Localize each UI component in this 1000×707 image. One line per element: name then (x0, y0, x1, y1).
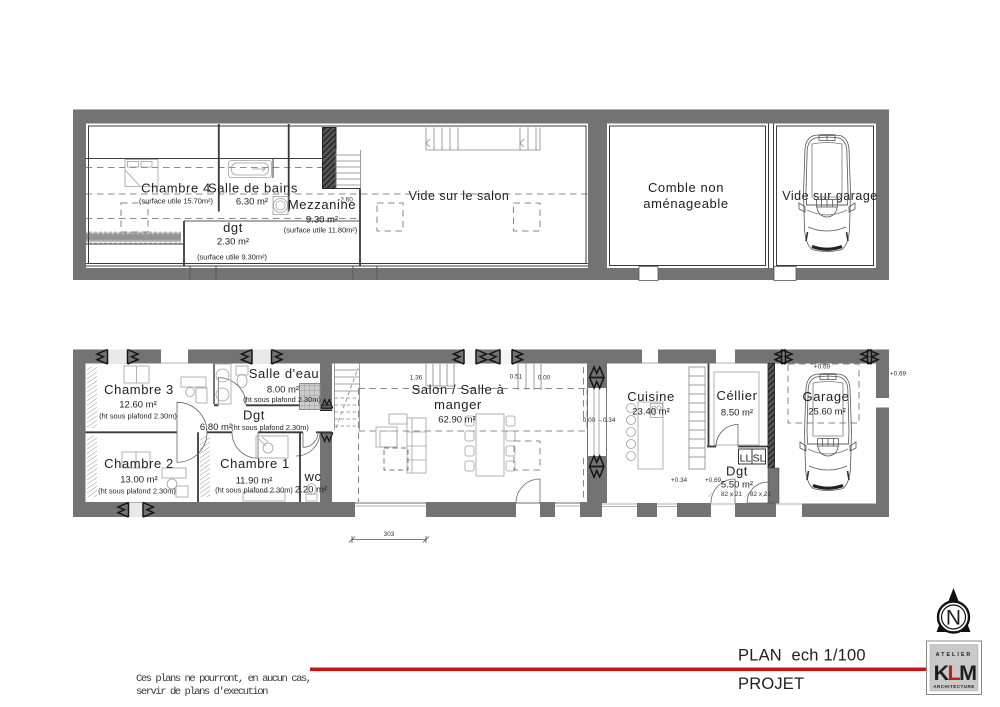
svg-text:(ht sous plafond 2.30m): (ht sous plafond 2.30m) (231, 423, 309, 432)
svg-text:ARCHITECTURE: ARCHITECTURE (933, 684, 975, 689)
svg-text:8.00 m²: 8.00 m² (267, 385, 299, 396)
svg-text:Salle de bains: Salle de bains (208, 180, 298, 195)
svg-text:Vide sur garage: Vide sur garage (782, 189, 878, 203)
svg-text:SL: SL (753, 453, 766, 465)
svg-text:Salon / Salle à: Salon / Salle à (412, 382, 505, 397)
svg-text:(surface utile 15.70m²): (surface utile 15.70m²) (139, 197, 213, 206)
svg-text:+0.69: +0.69 (705, 477, 722, 484)
svg-text:KLM: KLM (934, 661, 976, 685)
svg-text:servir de plans d'execution: servir de plans d'execution (136, 686, 268, 698)
svg-text:PROJET: PROJET (738, 675, 804, 693)
svg-text:N: N (946, 607, 961, 630)
svg-text:(ht sous plafond 2.30m): (ht sous plafond 2.30m) (215, 486, 293, 495)
svg-text:dgt: dgt (223, 220, 243, 235)
svg-text:62.90 m²: 62.90 m² (438, 415, 476, 426)
svg-text:-2.60: -2.60 (338, 197, 353, 204)
svg-text:Dgt: Dgt (243, 408, 265, 423)
svg-text:0.00: 0.00 (583, 417, 596, 424)
svg-text:(ht sous plafond 2.30m): (ht sous plafond 2.30m) (98, 487, 176, 496)
svg-text:manger: manger (434, 397, 482, 412)
svg-text:Vide sur le salon: Vide sur le salon (409, 189, 510, 203)
svg-text:+0.34: +0.34 (671, 477, 688, 484)
svg-text:Chambre 1: Chambre 1 (220, 456, 290, 471)
svg-text:1.36: 1.36 (410, 375, 423, 382)
svg-text:303: 303 (384, 531, 395, 538)
svg-text:Cuisine: Cuisine (627, 389, 675, 404)
svg-text:5.50 m²: 5.50 m² (721, 480, 753, 491)
svg-text:9.30 m²: 9.30 m² (306, 215, 338, 226)
svg-text:(surface utile 9.30m²): (surface utile 9.30m²) (197, 253, 267, 262)
svg-text:2.30 m²: 2.30 m² (217, 237, 249, 248)
svg-text:Chambre 4: Chambre 4 (141, 180, 211, 195)
svg-text:6.80 m²: 6.80 m² (200, 422, 232, 433)
svg-text:Dgt: Dgt (726, 464, 748, 479)
svg-text:Comble non: Comble non (648, 180, 724, 195)
svg-text:(ht sous plafond 2.30m): (ht sous plafond 2.30m) (99, 412, 177, 421)
svg-text:25.60 m²: 25.60 m² (808, 407, 846, 418)
svg-text:Chambre 3: Chambre 3 (104, 382, 174, 397)
svg-text:aménageable: aménageable (643, 196, 728, 211)
svg-text:Céllier: Céllier (716, 388, 757, 403)
svg-text:Chambre 2: Chambre 2 (104, 456, 174, 471)
svg-text:2.20 m²: 2.20 m² (295, 485, 327, 496)
svg-text:wc: wc (303, 469, 321, 484)
svg-text:(surface utile 11.80m²): (surface utile 11.80m²) (284, 226, 357, 235)
svg-text:6.30 m²: 6.30 m² (236, 197, 268, 208)
svg-text:0.00: 0.00 (538, 375, 551, 382)
svg-text:+0.69: +0.69 (890, 371, 907, 378)
svg-text:→0.34: →0.34 (597, 417, 616, 424)
svg-text:82 x 21: 82 x 21 (750, 491, 771, 498)
svg-text:12.60 m²: 12.60 m² (119, 400, 157, 411)
svg-text:13.00 m²: 13.00 m² (120, 475, 158, 486)
svg-text:Salle d'eau: Salle d'eau (249, 366, 320, 381)
svg-text:Garage: Garage (803, 389, 850, 404)
svg-text:+0.69: +0.69 (814, 364, 831, 371)
svg-text:PLAN ech 1/100: PLAN ech 1/100 (738, 647, 866, 665)
svg-text:23.40 m²: 23.40 m² (632, 407, 670, 418)
svg-text:(ht sous plafond 2.30m): (ht sous plafond 2.30m) (243, 395, 321, 404)
svg-text:Ces plans ne pourront, en aucu: Ces plans ne pourront, en aucun cas, (136, 673, 311, 685)
svg-text:0.51: 0.51 (510, 374, 523, 381)
svg-text:82 x 21: 82 x 21 (721, 491, 742, 498)
svg-text:8.50 m²: 8.50 m² (721, 408, 753, 419)
svg-text:ATELIER: ATELIER (936, 652, 973, 658)
